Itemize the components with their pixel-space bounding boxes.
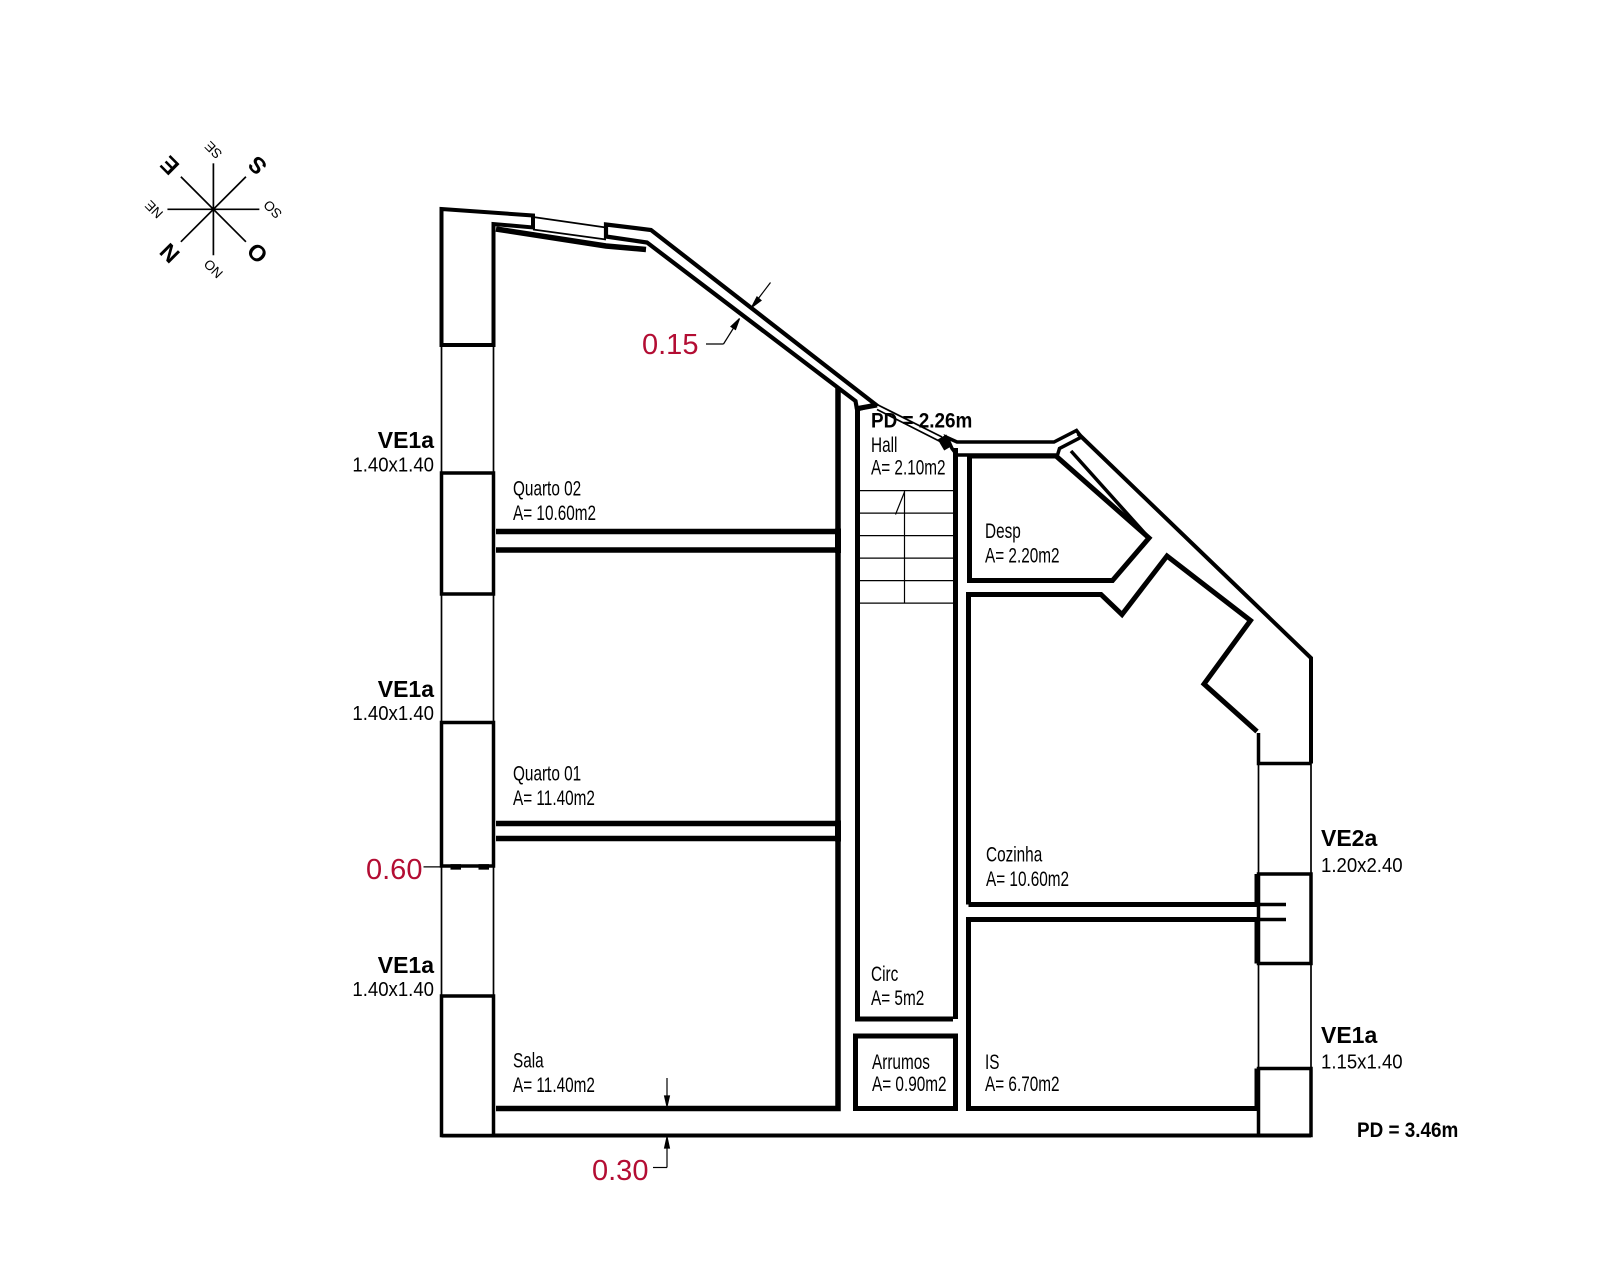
svg-text:Quarto 01: Quarto 01 <box>513 761 581 785</box>
svg-text:A= 10.60m2: A= 10.60m2 <box>986 867 1069 891</box>
svg-text:VE1a: VE1a <box>1321 1022 1377 1048</box>
svg-text:VE1a: VE1a <box>378 676 434 702</box>
svg-text:IS: IS <box>985 1050 999 1074</box>
svg-text:Cozinha: Cozinha <box>986 842 1043 866</box>
svg-text:A= 2.10m2: A= 2.10m2 <box>871 455 946 479</box>
svg-text:1.40x1.40: 1.40x1.40 <box>352 703 434 725</box>
svg-text:A= 6.70m2: A= 6.70m2 <box>985 1072 1060 1096</box>
svg-text:PD = 3.46m: PD = 3.46m <box>1357 1119 1458 1142</box>
svg-text:Hall: Hall <box>871 433 897 457</box>
svg-text:0.15: 0.15 <box>642 329 698 361</box>
svg-text:0.60: 0.60 <box>366 854 422 886</box>
svg-text:Desp: Desp <box>985 519 1021 543</box>
svg-text:A= 11.40m2: A= 11.40m2 <box>513 1073 595 1097</box>
svg-text:1.40x1.40: 1.40x1.40 <box>352 979 434 1001</box>
svg-text:Arrumos: Arrumos <box>872 1050 930 1074</box>
svg-text:A= 11.40m2: A= 11.40m2 <box>513 786 595 810</box>
svg-text:VE2a: VE2a <box>1321 825 1377 851</box>
svg-text:Quarto 02: Quarto 02 <box>513 476 581 500</box>
svg-text:Circ: Circ <box>871 962 898 986</box>
svg-text:Sala: Sala <box>513 1048 544 1072</box>
svg-text:A= 10.60m2: A= 10.60m2 <box>513 501 596 525</box>
svg-text:1.15x1.40: 1.15x1.40 <box>1321 1052 1403 1074</box>
svg-text:A= 2.20m2: A= 2.20m2 <box>985 543 1060 567</box>
svg-text:A= 5m2: A= 5m2 <box>871 986 924 1010</box>
svg-text:A= 0.90m2: A= 0.90m2 <box>872 1072 947 1096</box>
svg-text:0.30: 0.30 <box>592 1155 648 1187</box>
svg-text:PD = 2.26m: PD = 2.26m <box>871 410 972 433</box>
svg-text:VE1a: VE1a <box>378 427 434 453</box>
svg-text:1.40x1.40: 1.40x1.40 <box>352 455 434 477</box>
svg-text:VE1a: VE1a <box>378 952 434 978</box>
svg-text:1.20x2.40: 1.20x2.40 <box>1321 855 1403 877</box>
